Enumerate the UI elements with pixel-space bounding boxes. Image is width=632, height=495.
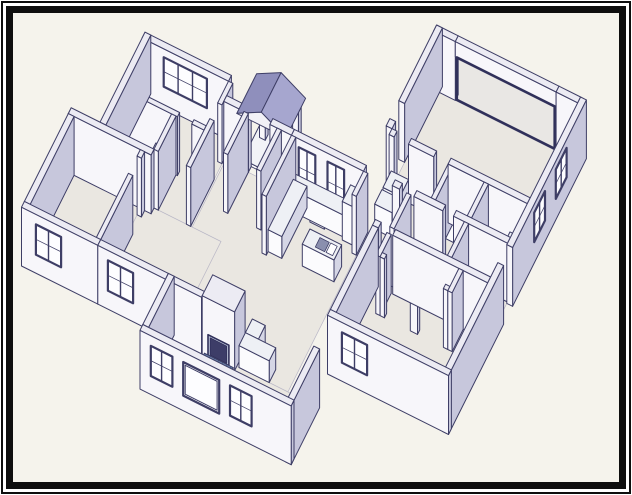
bedroom3-closet-stub-1 bbox=[380, 253, 387, 318]
framed-floor-plan-page bbox=[0, 0, 632, 495]
bedroom2-east-wall-a bbox=[137, 150, 145, 217]
floor-plan-drawing bbox=[0, 0, 632, 495]
